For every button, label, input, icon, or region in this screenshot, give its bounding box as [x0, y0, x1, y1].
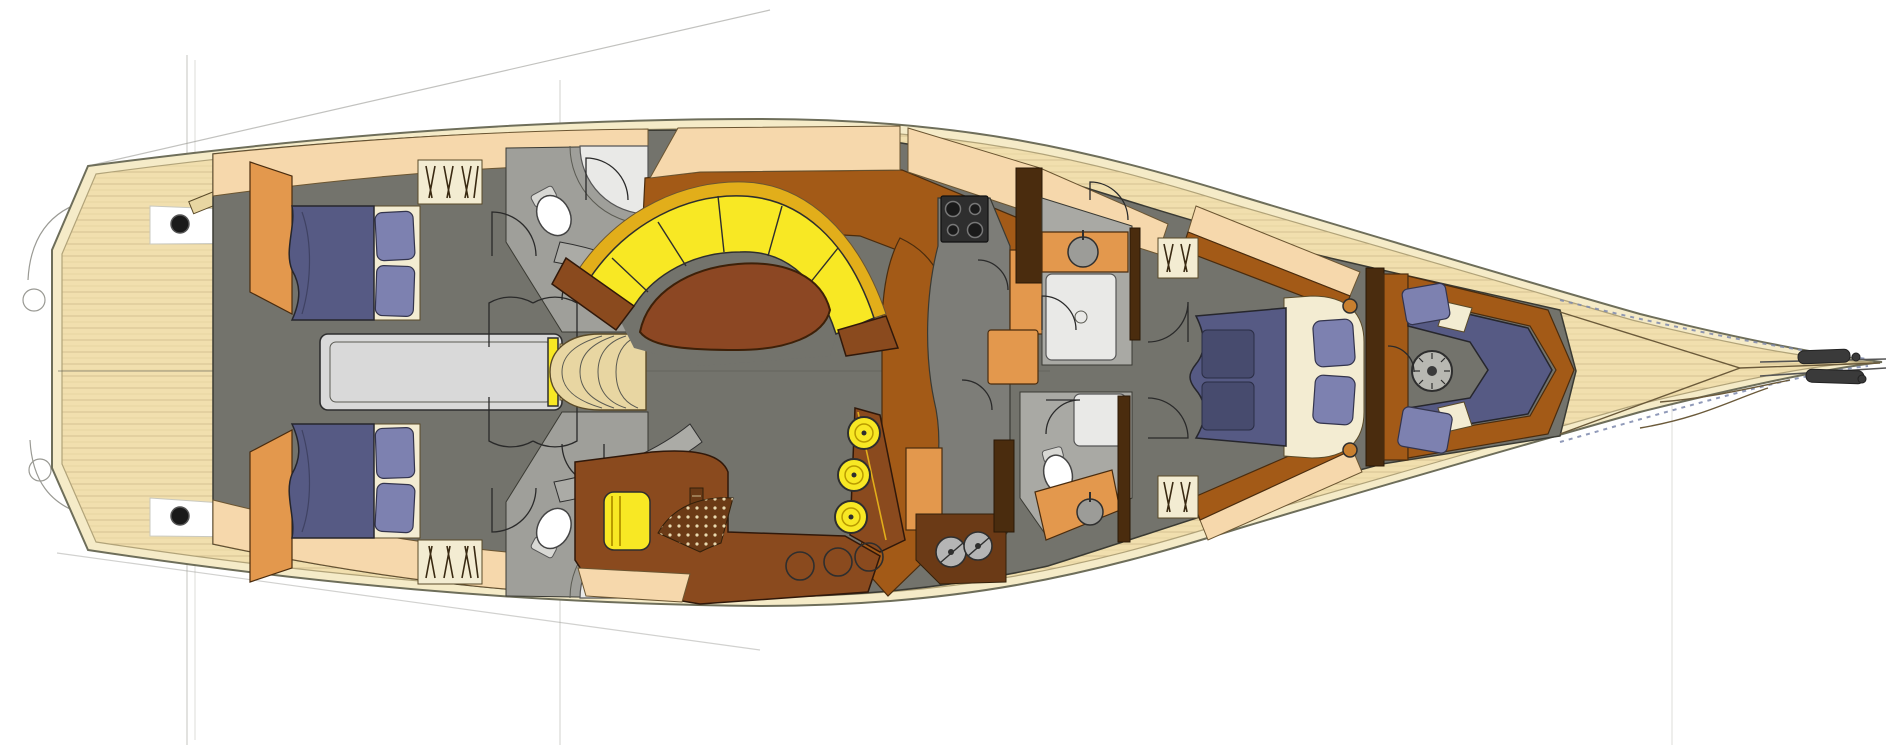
- berth-cushion: [1202, 330, 1254, 378]
- burner: [970, 204, 981, 215]
- engine-hatch: [320, 334, 562, 410]
- engine-room: [320, 334, 574, 410]
- cabin-locker: [250, 162, 292, 314]
- galley-island: [988, 330, 1038, 384]
- pillow: [375, 211, 415, 261]
- reading-light: [1343, 443, 1357, 457]
- wash-basin: [1068, 237, 1098, 267]
- pillow: [1312, 319, 1355, 368]
- bulkhead-post-top: [1130, 228, 1140, 340]
- bollard: [171, 215, 189, 233]
- hanging-locker: [418, 160, 482, 204]
- pillow: [1401, 282, 1451, 325]
- pillow: [1312, 375, 1355, 426]
- wash-basin: [1077, 499, 1103, 525]
- companionway-steps: [548, 334, 646, 410]
- stern-hook-bottom: [29, 459, 51, 481]
- yacht-deck-plan: [0, 0, 1900, 750]
- bollard: [171, 507, 189, 525]
- yacht-deck-plan-canvas: [0, 0, 1900, 750]
- double-berth: [289, 206, 374, 320]
- nav-chair: [604, 492, 650, 550]
- shower-stall-forward: [1046, 274, 1116, 360]
- hanging-locker: [1158, 238, 1198, 278]
- nav-station-base: [578, 568, 690, 602]
- stern-hook-top: [23, 289, 45, 311]
- burner: [968, 223, 983, 238]
- berth-cushion: [1202, 382, 1254, 430]
- collision-bulkhead: [1366, 268, 1384, 466]
- mast-post-bottom: [994, 440, 1014, 532]
- burner: [946, 202, 961, 217]
- mast-post-top: [1016, 168, 1042, 283]
- burner: [948, 225, 959, 236]
- windlass: [1412, 351, 1452, 391]
- hanging-locker: [1158, 476, 1198, 518]
- reading-light: [1343, 299, 1357, 313]
- pillow: [1397, 406, 1453, 454]
- coachroof-panel-left: [650, 126, 900, 178]
- bulkhead-post-bottom: [1118, 396, 1130, 542]
- pillow: [375, 265, 415, 316]
